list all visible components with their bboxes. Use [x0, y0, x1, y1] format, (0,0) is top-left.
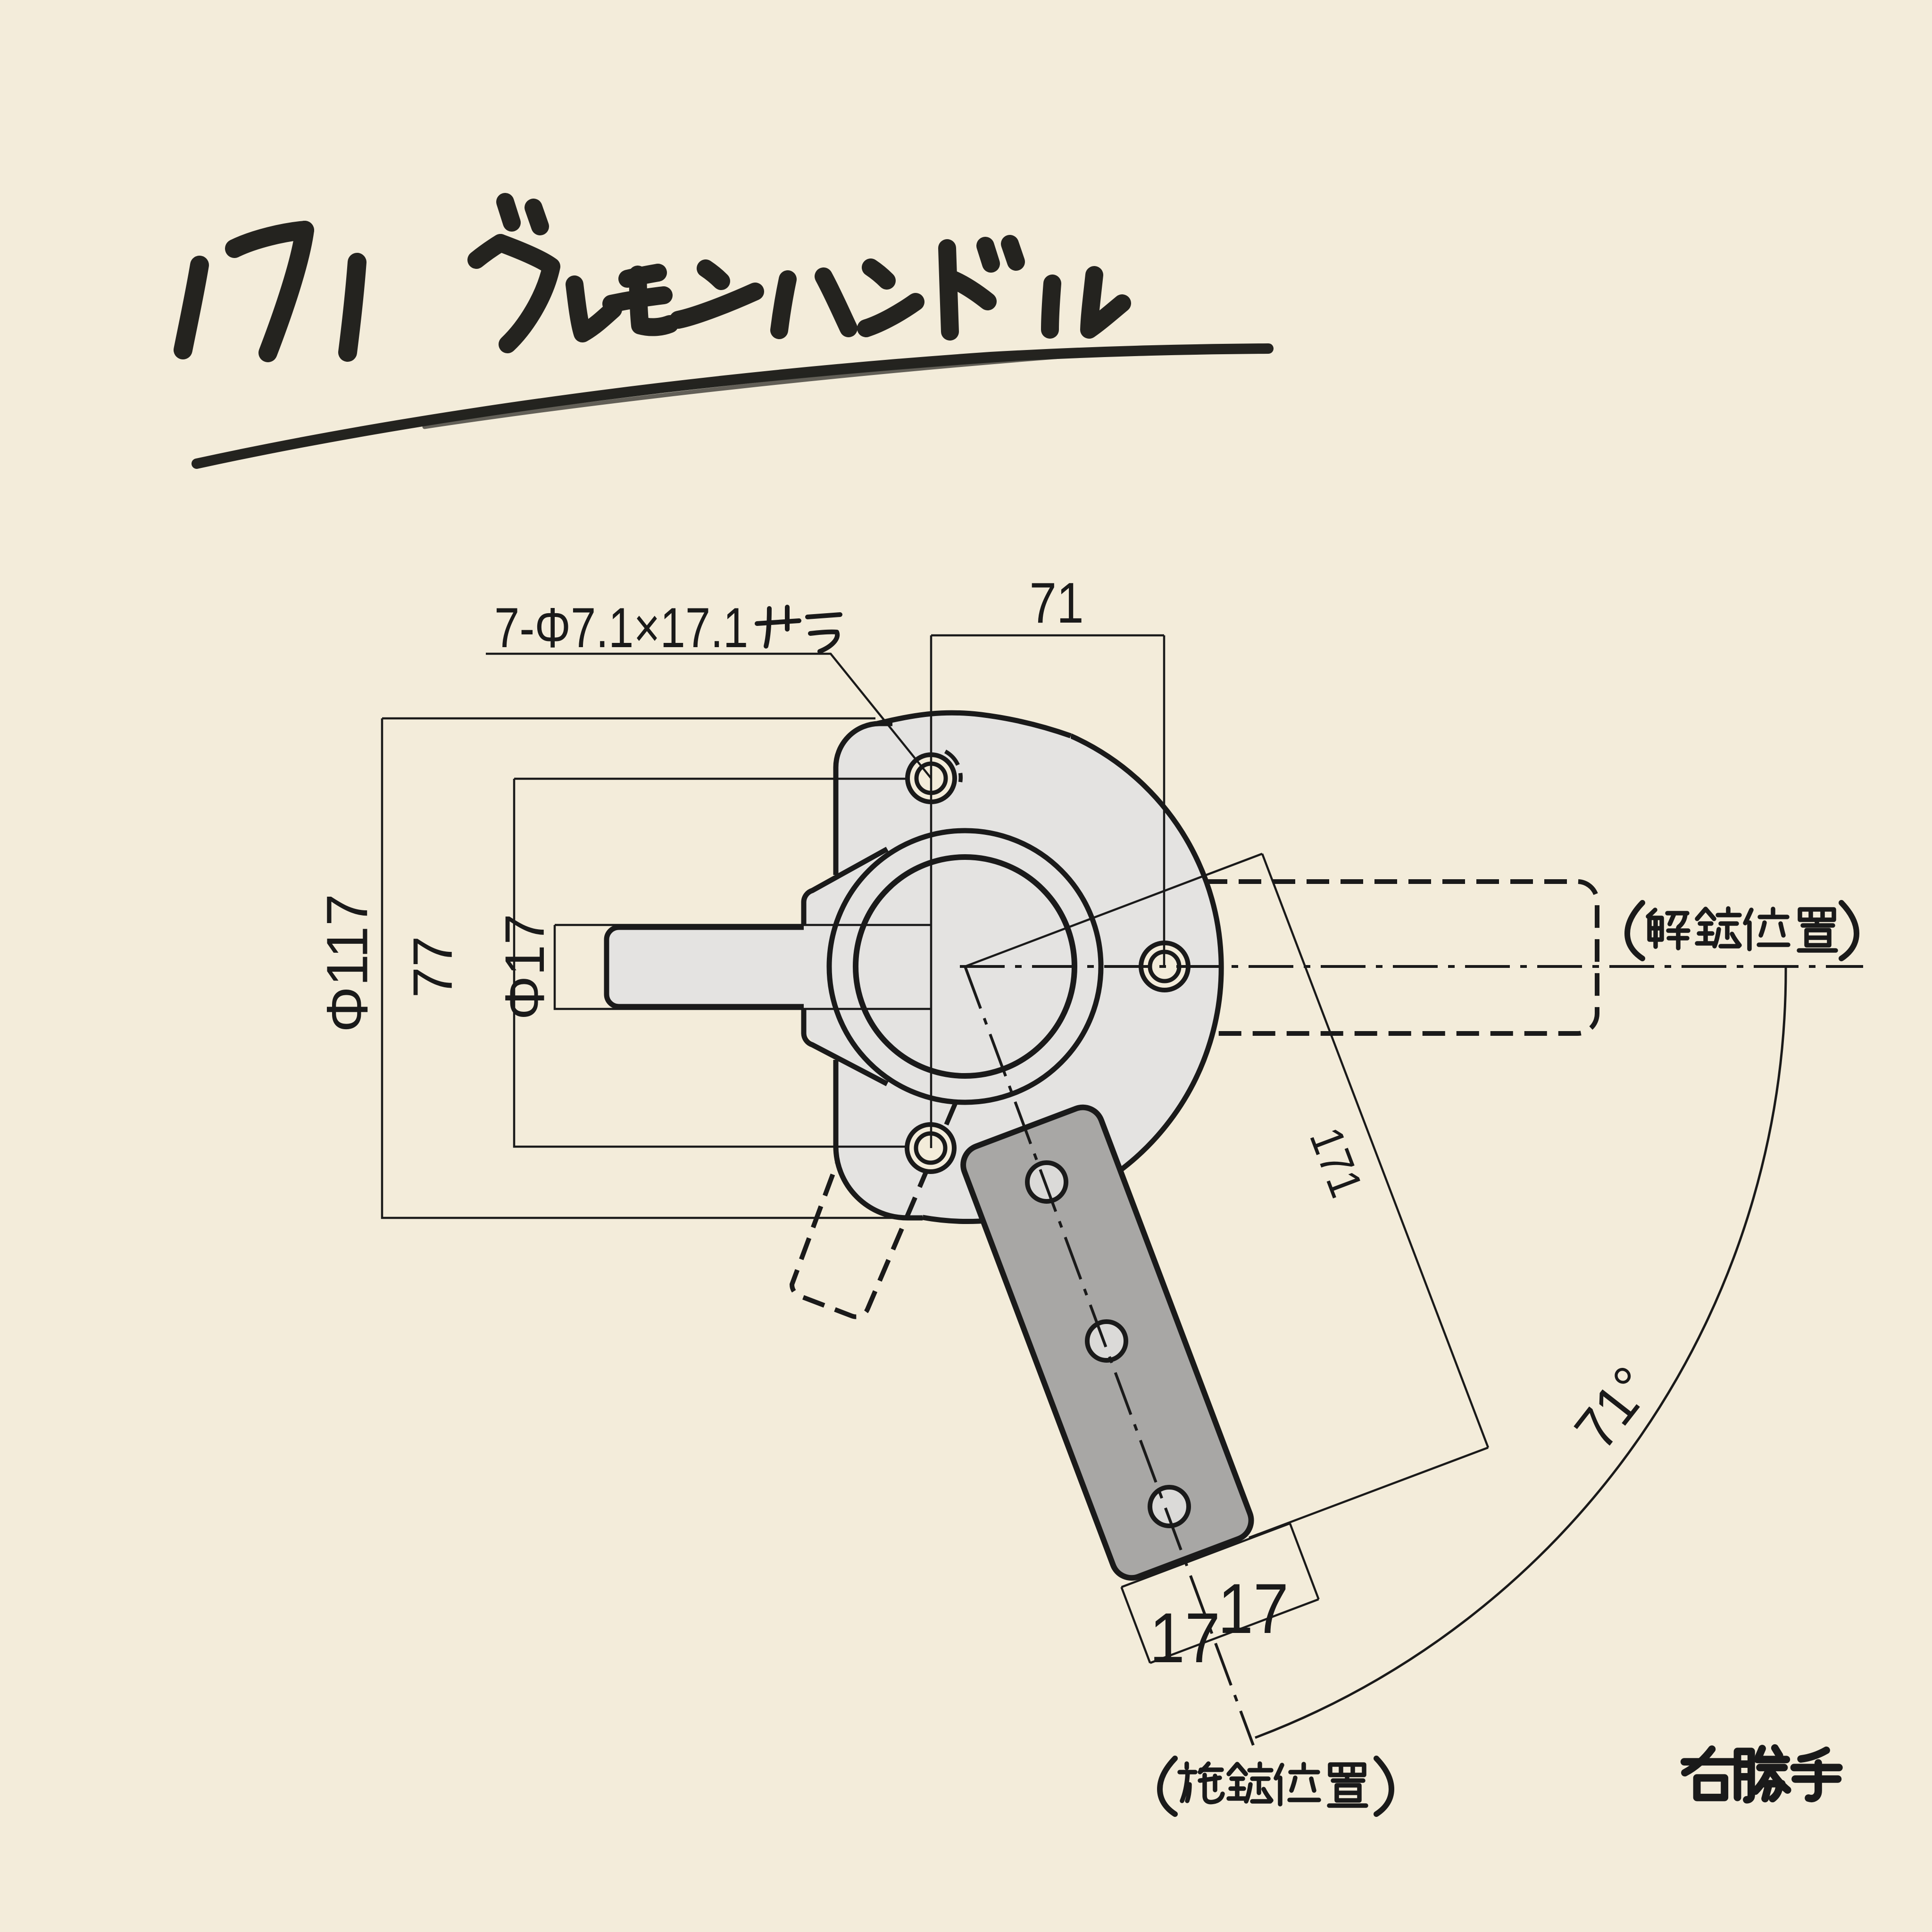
- svg-text:17: 17: [1218, 1569, 1289, 1648]
- svg-text:71: 71: [1029, 571, 1083, 635]
- svg-text:77: 77: [402, 936, 464, 998]
- svg-text:Φ117: Φ117: [316, 894, 380, 1033]
- svg-text:17: 17: [1149, 1599, 1220, 1677]
- svg-text:7-Φ7.1×17.1: 7-Φ7.1×17.1: [494, 597, 748, 660]
- svg-text:Φ17: Φ17: [494, 914, 556, 1020]
